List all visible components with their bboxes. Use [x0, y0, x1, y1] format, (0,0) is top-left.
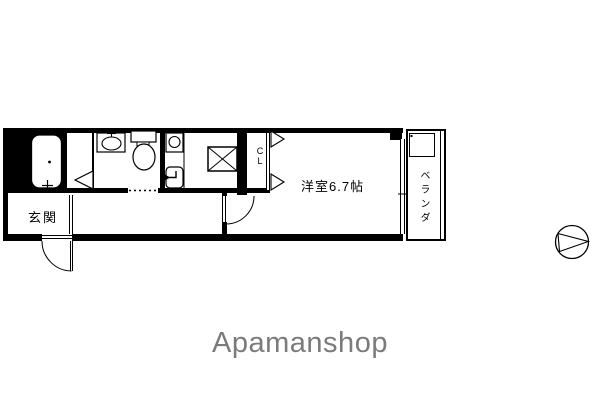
- balcony-label: ベランダ: [416, 170, 431, 226]
- kitchen-range-icon: [208, 147, 237, 171]
- toilet-icon: [131, 131, 156, 170]
- laundry-faucet-icon: [165, 167, 183, 188]
- bath-door-icon: [75, 171, 93, 189]
- washbasin-icon: [97, 131, 125, 153]
- brand-wordmark: Apamanshop: [150, 327, 450, 360]
- room-door-swing: [226, 196, 254, 224]
- washing-machine-icon: [166, 133, 183, 152]
- closet-label-c: C: [253, 146, 267, 156]
- entrance-door-swing: [42, 241, 72, 271]
- closet-label: C L: [253, 146, 267, 166]
- balcony-box-dot: [411, 135, 413, 137]
- closet-door-top-icon: [271, 131, 284, 147]
- bathtub-icon: [32, 135, 62, 189]
- closet-door-bottom-icon: [271, 174, 284, 190]
- entrance-label: 玄関: [28, 207, 58, 226]
- floor-plan-page: 玄関 洋室6.7帖 C L ベランダ Apamanshop: [0, 0, 600, 400]
- closet-label-l: L: [253, 156, 267, 166]
- compass-icon: [556, 226, 589, 259]
- room-size-label: 洋室6.7帖: [301, 176, 364, 195]
